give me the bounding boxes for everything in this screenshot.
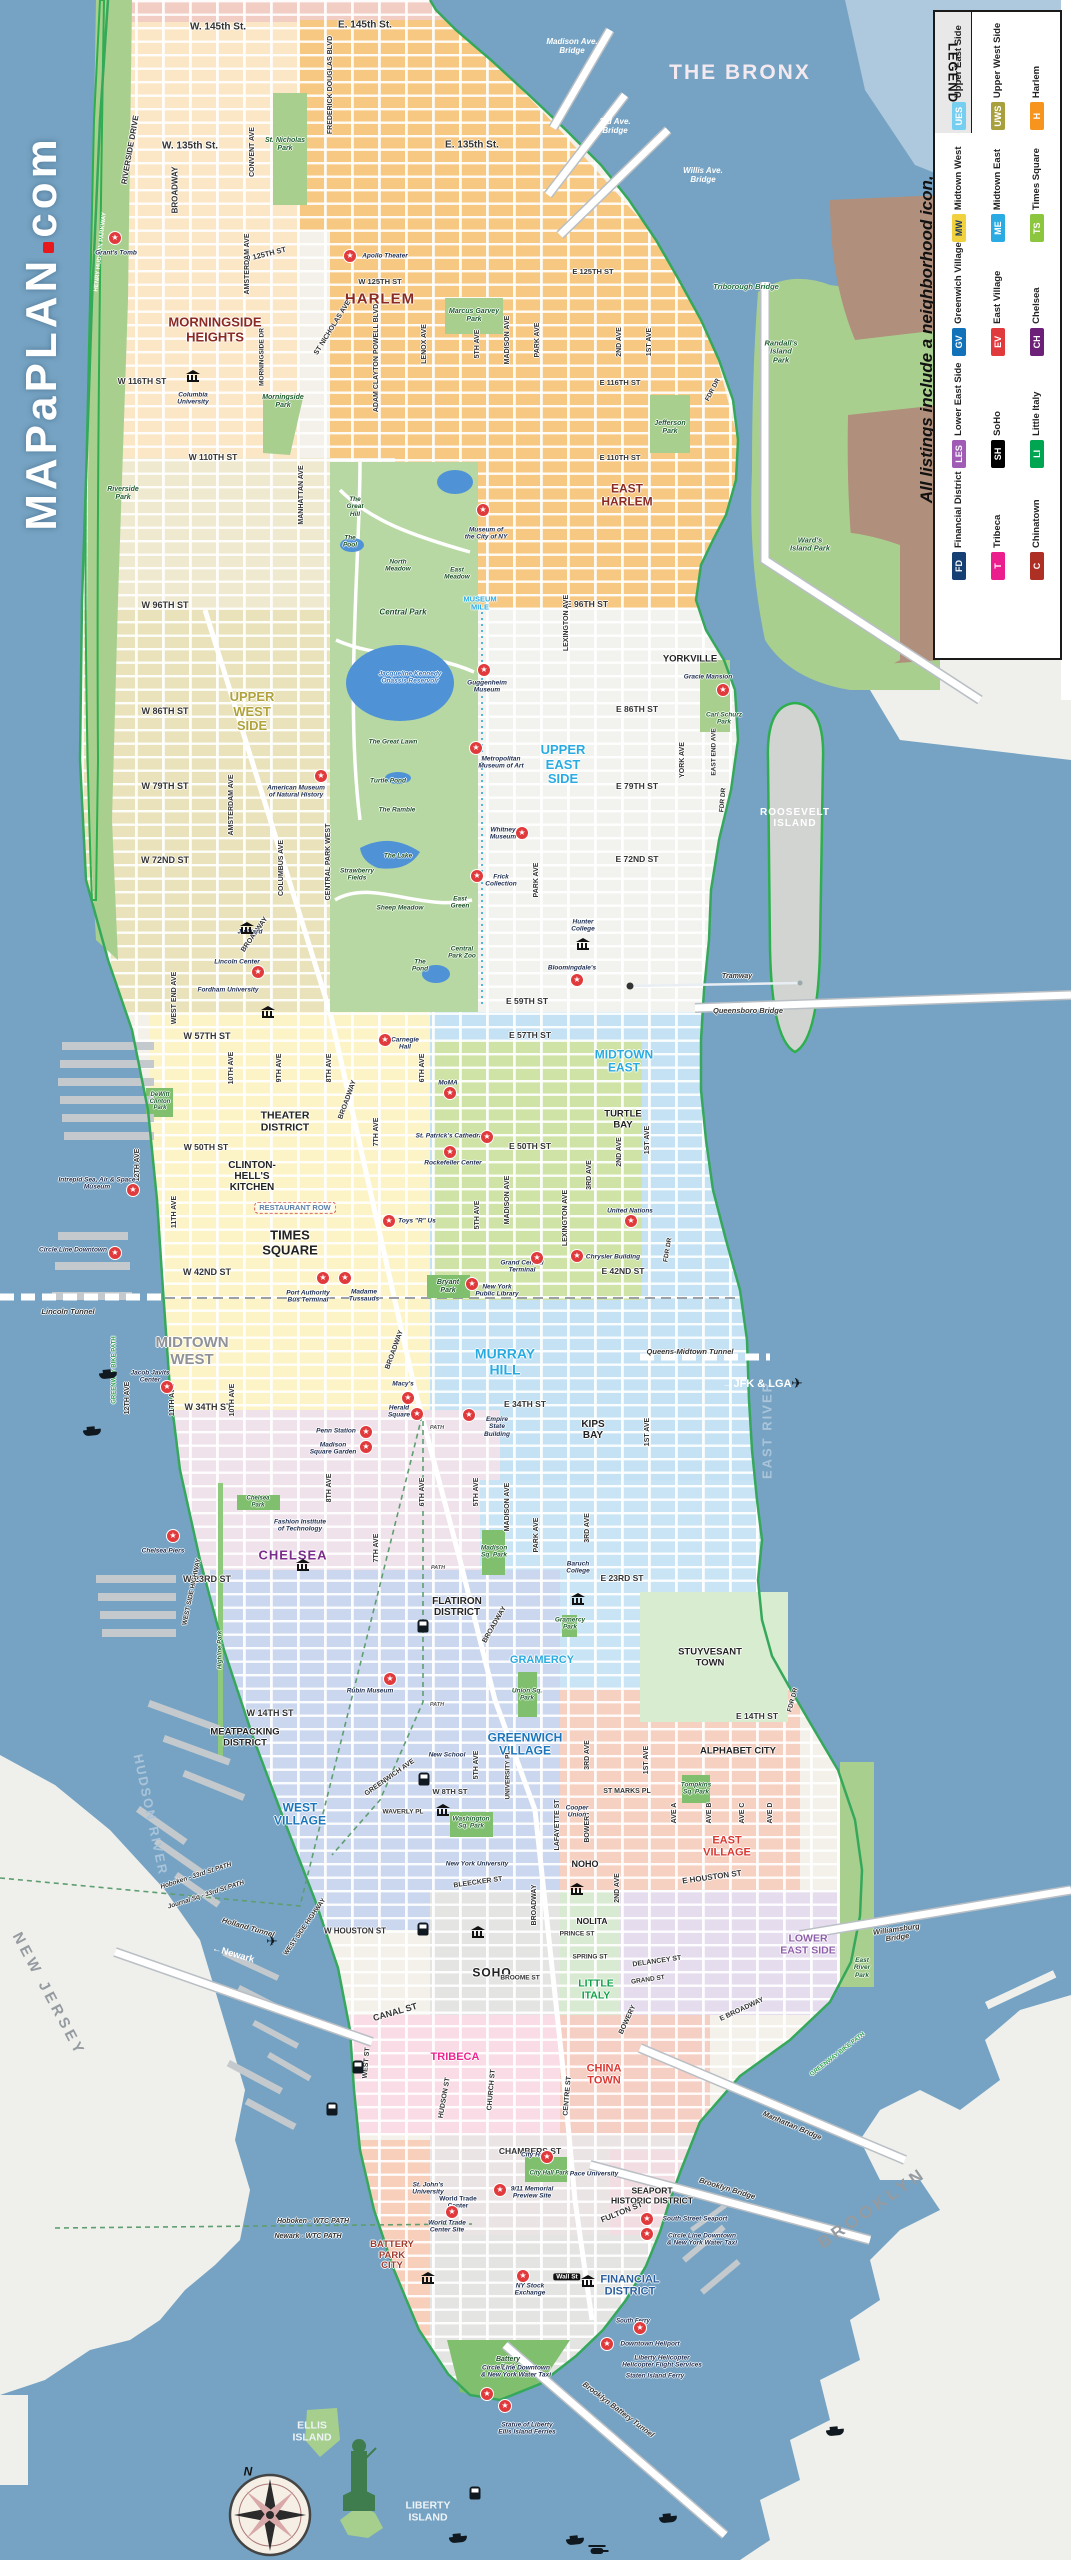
train-icon [418, 1620, 429, 1633]
map-label: E 86TH ST [616, 705, 658, 715]
map-label: FREDERICK DOUGLAS BLVD [327, 36, 335, 134]
legend-item-ch: CHChelsea [1017, 242, 1056, 356]
legend-chip-ch: CH [1030, 328, 1044, 356]
legend-name: Financial District [953, 471, 964, 548]
map-label: 3RD AVE [586, 1160, 594, 1190]
map-label: WEST VILLAGE [274, 1802, 326, 1829]
legend-chip-les: LES [952, 440, 966, 468]
heli-icon [591, 2548, 604, 2554]
ship-icon [449, 2533, 468, 2544]
star-icon: ★ [445, 2205, 459, 2219]
train-icon [419, 1773, 430, 1786]
map-label: Triborough Bridge [713, 283, 779, 291]
map-label: 5TH AVE [473, 1751, 481, 1780]
map-label: LOWER EAST SIDE [780, 1933, 835, 1957]
star-icon: ★ [251, 965, 265, 979]
map-label: Sheep Meadow [377, 904, 424, 911]
legend-item-t: TTribeca [978, 468, 1017, 580]
map-label: 9/11 Memorial Preview Site [511, 2186, 554, 2201]
star-icon: ★ [316, 1271, 330, 1285]
map-label: New School [429, 1751, 466, 1758]
legend-item-ev: EVEast Village [978, 242, 1017, 356]
legend-name: Times Square [1031, 148, 1042, 210]
star-icon: ★ [108, 231, 122, 245]
star-icon: ★ [469, 741, 483, 755]
map-label: W 96TH ST [141, 600, 188, 610]
map-label: W. 135th St. [162, 140, 218, 151]
map-label: 2ND AVE [616, 1137, 624, 1167]
map-label: Highline Park [218, 1631, 225, 1669]
map-label: LEXINGTON AVE [562, 1190, 570, 1246]
map-label: W 125TH ST [358, 278, 401, 286]
map-label: Riverside Park [107, 486, 139, 502]
map-label: E 57TH ST [509, 1031, 551, 1041]
map-label: TIMES SQUARE [262, 1228, 318, 1257]
legend-chip-gv: GV [952, 328, 966, 356]
legend-item-sh: SHSoHo [978, 356, 1017, 468]
star-icon: ★ [462, 1408, 476, 1422]
map-label: MEATPACKING DISTRICT [210, 1727, 279, 1748]
star-icon: ★ [160, 1380, 174, 1394]
map-label: Penn Station [316, 1427, 356, 1434]
map-label: MORNINGSIDE DR [258, 328, 265, 386]
map-label: Toys "R" Us [398, 1217, 436, 1224]
map-label: Wall St [553, 2273, 580, 2280]
legend-item-gv: GVGreenwich Village [939, 242, 978, 356]
map-label: CHINA TOWN [587, 2063, 622, 2088]
map-label: E. 145th St. [338, 19, 392, 30]
map-label: NOHO [572, 1859, 599, 1869]
legend-item-uws: UWSUpper West Side [978, 18, 1017, 130]
map-label: UNIVERSITY PL [504, 1750, 511, 1799]
star-icon: ★ [480, 1130, 494, 1144]
legend-name: Chelsea [1031, 287, 1042, 323]
map-label: W 86TH ST [141, 706, 188, 716]
map-label: MADISON AVE [504, 1483, 512, 1532]
map-label: Bryant Park [437, 1279, 459, 1295]
map-label: Macy's [392, 1380, 413, 1387]
star-icon: ★ [476, 503, 490, 517]
legend-name: Little Italy [1031, 392, 1042, 436]
map-label: 7TH AVE [373, 1534, 381, 1563]
map-label: Cooper Union [566, 1805, 589, 1820]
legend-chip-ues: UES [952, 102, 966, 130]
legend-chip-me: ME [991, 214, 1005, 242]
legend-chip-t: T [991, 552, 1005, 580]
map-label: 10TH AVE [228, 1052, 236, 1085]
map-label: Chrysler Building [586, 1253, 640, 1260]
map-label: E 23RD ST [601, 1574, 644, 1584]
map-label: E 116TH ST [600, 379, 641, 387]
legend-name: Midtown East [992, 149, 1003, 210]
compass-rose [230, 2475, 310, 2555]
inst-icon [261, 1006, 275, 1018]
inst-icon [186, 370, 200, 382]
legend-item-mw: MWMidtown West [939, 130, 978, 242]
map-label: Hoboken - WTC PATH [277, 2218, 349, 2226]
map-label: W 8TH ST [433, 1788, 468, 1796]
map-label: Ward's Island Park [790, 537, 830, 554]
legend-items: FDFinancial DistrictTTribecaCChinatownLE… [935, 12, 1060, 620]
map-label: CHELSEA [258, 1549, 327, 1564]
map-label: LAFAYETTE ST [554, 1799, 562, 1850]
map-label: 9TH AVE [276, 1054, 284, 1083]
star-icon: ★ [624, 1214, 638, 1228]
legend-chip-ev: EV [991, 328, 1005, 356]
map-label: PARK AVE [534, 323, 542, 358]
map-label: E 110TH ST [600, 454, 641, 462]
map-label: TURTLE BAY [604, 1109, 641, 1130]
map-label: BROOME ST [500, 1974, 539, 1981]
map-label: DeWitt Clinton Park [150, 1092, 171, 1112]
map-label: 1ST AVE [646, 328, 654, 356]
map-label: 1ST AVE [644, 1418, 652, 1446]
map-label: YORKVILLE [663, 655, 717, 666]
map-label: Lincoln Center [214, 958, 260, 965]
star-icon: ★ [570, 973, 584, 987]
map-label: PARK AVE [533, 1518, 541, 1553]
star-icon: ★ [108, 1246, 122, 1260]
map-label: Lincoln Tunnel [41, 1308, 94, 1316]
legend-item-me: MEMidtown East [978, 130, 1017, 242]
map-label: LEXINGTON AVE [563, 595, 571, 651]
map-label: Circle Line Downtown & New York Water Ta… [667, 2233, 737, 2248]
map-label: Tompkins Sq. Park [681, 1782, 711, 1797]
map-label: 2ND AVE [616, 327, 624, 357]
map-label: Intrepid Sea, Air & Space Museum [58, 1177, 135, 1192]
map-label: Baruch College [566, 1561, 589, 1576]
ship-icon [659, 2513, 678, 2524]
ship-icon [566, 2535, 585, 2546]
map-label: American Museum of Natural History [267, 785, 325, 800]
map-label: North Meadow [385, 559, 411, 574]
map-label: FINANCIAL DISTRICT [600, 2274, 659, 2299]
map-label: Queensboro Bridge [713, 1007, 783, 1015]
map-label: 5TH AVE [474, 1201, 482, 1230]
star-icon: ★ [633, 2321, 647, 2335]
star-icon: ★ [401, 1391, 415, 1405]
star-icon: ★ [343, 249, 357, 263]
map-label: UPPER EAST SIDE [541, 743, 586, 787]
site-logo-name: MAPaPLAN [17, 257, 66, 531]
legend-name: Upper East Side [953, 25, 964, 98]
legend-name: Greenwich Village [953, 242, 964, 324]
map-label: NOLITA [576, 1917, 607, 1927]
star-icon: ★ [640, 2227, 654, 2241]
map-label: UPPER WEST SIDE [230, 690, 275, 734]
star-icon: ★ [443, 1086, 457, 1100]
star-icon: ★ [359, 1425, 373, 1439]
map-label: COLUMBUS AVE [278, 840, 286, 896]
map-label: EAST HARLEM [601, 483, 652, 510]
map-label: Whitney Museum [490, 827, 516, 842]
star-icon: ★ [493, 2183, 507, 2197]
site-logo-tld: com [17, 135, 66, 237]
map-label: THEATER DISTRICT [261, 1110, 310, 1134]
site-logo: MAPaPLANcom [17, 43, 67, 623]
legend-item-ts: TSTimes Square [1017, 130, 1056, 242]
map-label: 3RD AVE [584, 1513, 592, 1543]
star-icon: ★ [516, 2269, 530, 2283]
legend-name: Midtown West [953, 146, 964, 210]
map-label: Staten Island Ferry [626, 2372, 685, 2379]
train-icon [327, 2103, 338, 2116]
map-label: Queens-Midtown Tunnel [647, 1348, 734, 1356]
ship-icon [99, 1369, 118, 1380]
inst-icon [296, 1559, 310, 1571]
map-label: MORNINGSIDE HEIGHTS [168, 315, 261, 344]
map-label: W 72ND ST [141, 855, 189, 865]
legend-chip-fd: FD [952, 552, 966, 580]
legend-item-les: LESLower East Side [939, 356, 978, 468]
map-label: MADISON AVE [504, 1176, 512, 1225]
map-label: World Trade Center Site [428, 2220, 466, 2235]
map-label: The Great Hill [347, 496, 364, 518]
map-label: Morningside Park [262, 394, 304, 410]
map-label: ELLIS ISLAND [292, 2420, 331, 2444]
map-label: Hunter College [571, 919, 594, 934]
map-canvas: THE BRONXNEW JERSEYBROOKLYNHUDSON RIVERE… [0, 0, 1071, 2560]
map-label: Empire State Building [484, 1416, 510, 1438]
map-label: Fashion Institute of Technology [274, 1519, 326, 1534]
map-label: W HOUSTON ST [324, 1928, 386, 1937]
inst-icon [471, 1926, 485, 1938]
map-label: W 79TH ST [141, 781, 188, 791]
map-label: EAST END AVE [710, 728, 717, 775]
map-label: LENOX AVE [421, 324, 429, 364]
ship-icon [826, 2426, 845, 2437]
map-label: Madison Sq. Park [481, 1545, 507, 1560]
map-label: AVE C [739, 1803, 747, 1824]
map-label: AVE B [706, 1803, 714, 1824]
map-label: Jefferson Park [654, 420, 685, 436]
star-icon: ★ [540, 2150, 554, 2164]
map-label: Rockefeller Center [424, 1159, 481, 1166]
map-label: Newark - WTC PATH [274, 2233, 341, 2241]
map-label: The Great Lawn [369, 738, 418, 745]
map-label: MURRAY HILL [475, 1346, 535, 1377]
map-label: BATTERY PARK CITY [370, 2240, 414, 2272]
map-label: 5TH AVE [473, 1478, 481, 1507]
inst-icon [240, 922, 254, 934]
map-label: KIPS BAY [581, 1419, 604, 1441]
map-label: Central Park Zoo [448, 946, 476, 961]
inst-icon [436, 1804, 450, 1816]
map-label: LITTLE ITALY [578, 1978, 614, 2002]
map-label: PATH [430, 1425, 444, 1431]
map-label: Grant's Tomb [95, 249, 137, 256]
map-label: Guggenheim Museum [467, 680, 507, 695]
star-icon: ★ [600, 2337, 614, 2351]
map-label: E 34TH ST [504, 1400, 546, 1410]
legend-chip-h: H [1030, 102, 1044, 130]
inst-icon [570, 1883, 584, 1895]
star-icon: ★ [480, 2387, 494, 2401]
map-label: E 72ND ST [616, 855, 659, 865]
map-label: East River Park [854, 1957, 870, 1979]
star-icon: ★ [716, 683, 730, 697]
map-label: The Pool [343, 535, 357, 550]
map-label: Jacqueline Kennedy Onassis Reservoir [379, 671, 442, 686]
map-label: AMSTERDAM AVE [228, 774, 236, 835]
map-label: 8TH AVE [326, 1054, 334, 1083]
map-label: CENTRAL PARK WEST [325, 824, 333, 901]
star-icon: ★ [477, 663, 491, 677]
map-label: 2ND AVE [614, 1873, 622, 1903]
map-label: 7TH AVE [373, 1118, 381, 1147]
map-label: East Meadow [444, 567, 470, 582]
legend-item-ues: UESUpper East Side [939, 18, 978, 130]
star-icon: ★ [126, 1183, 140, 1197]
map-label: Madison Square Garden [310, 1442, 357, 1457]
star-icon: ★ [470, 869, 484, 883]
star-icon: ★ [515, 826, 529, 840]
map-label: 3rd Ave. Bridge [599, 118, 630, 136]
star-icon: ★ [498, 2399, 512, 2413]
map-label: Willis Ave. Bridge [683, 167, 723, 185]
map-label: Marcus Garvey Park [449, 308, 499, 324]
map-label: Madison Ave. Bridge [546, 38, 597, 56]
map-label: Metropolitan Museum of Art [478, 756, 523, 771]
map-label: 8TH AVE [326, 1474, 334, 1503]
map-label: Central Park [379, 609, 426, 618]
map-label: TRIBECA [431, 2051, 480, 2063]
map-label: NY Stock Exchange [515, 2283, 546, 2298]
map-label: 6TH AVE [419, 1054, 427, 1083]
map-label: E. 135th St. [445, 139, 499, 150]
map-label: CLINTON- HELL'S KITCHEN [228, 1160, 276, 1194]
star-icon: ★ [382, 1214, 396, 1228]
star-icon: ★ [166, 1529, 180, 1543]
legend-item-li: LILittle Italy [1017, 356, 1056, 468]
star-icon: ★ [570, 1249, 584, 1263]
map-label: E 59TH ST [506, 997, 548, 1007]
map-label: Washington Sq. Park [452, 1816, 489, 1831]
map-label: New York Public Library [475, 1284, 518, 1299]
map-label: PARK AVE [533, 863, 541, 898]
map-label: 10TH AVE [229, 1384, 237, 1417]
map-label: 1ST AVE [644, 1126, 652, 1154]
map-label: SEAPORT HISTORIC DISTRICT [611, 2186, 693, 2205]
map-label: Liberty Helicopter Helicopter Flight Ser… [622, 2355, 702, 2370]
legend-name: Chinatown [1031, 499, 1042, 548]
map-label: FLATIRON DISTRICT [432, 1596, 482, 1618]
legend-board [1061, 0, 1071, 700]
map-label: Statue of Liberty Ellis Island Ferries [498, 2422, 555, 2437]
map-label: 5TH AVE [474, 330, 482, 359]
legend-chip-sh: SH [991, 440, 1005, 468]
train-icon [470, 2487, 481, 2500]
legend-name: Upper West Side [992, 23, 1003, 98]
star-icon: ★ [314, 769, 328, 783]
map-label: Apollo Theater [362, 252, 408, 259]
plane-icon: ✈ [791, 1376, 803, 1392]
legend-name: Harlem [1031, 66, 1042, 98]
legend-name: SoHo [992, 411, 1003, 436]
map-label: SPRING ST [572, 1953, 607, 1960]
map-label: W 34TH ST [184, 1402, 231, 1412]
map-label: Tramway [722, 973, 752, 981]
map-label: 6TH AVE [419, 1478, 427, 1507]
map-label: Carnegie Hall [391, 1037, 419, 1052]
logo-dot-icon [43, 242, 54, 253]
map-label: ALPHABET CITY [700, 1747, 776, 1758]
map-label: E 79TH ST [616, 782, 658, 792]
map-label: W 42ND ST [183, 1267, 231, 1277]
map-label: PATH [430, 1702, 444, 1708]
plane-icon: ✈ [266, 1934, 278, 1950]
map-label: W 116TH ST [118, 377, 167, 387]
map-label: WAVERLY PL [382, 1808, 423, 1815]
star-icon: ★ [465, 1277, 479, 1291]
star-icon: ★ [359, 1440, 373, 1454]
map-label: W. 145th St. [190, 21, 246, 32]
map-label: E 125TH ST [572, 268, 613, 276]
legend-chip-c: C [1030, 552, 1044, 580]
star-icon: ★ [410, 1407, 424, 1421]
legend-item-c: CChinatown [1017, 468, 1056, 580]
map-label: Gramercy Park [555, 1617, 585, 1632]
map-label: WEST END AVE [171, 972, 179, 1025]
map-label: E 50TH ST [509, 1142, 551, 1152]
map-label: PRINCE ST [560, 1930, 595, 1937]
map-label: City Hall Park [530, 2171, 569, 2178]
compass-north-label: N [244, 2465, 253, 2478]
star-icon: ★ [383, 1672, 397, 1686]
inst-icon [581, 2275, 595, 2287]
map-label: →JFK & LGA [722, 1378, 791, 1390]
map-label: Chelsea Park [246, 1495, 269, 1508]
map-label: ADAM CLAYTON POWELL BLVD [373, 304, 381, 412]
map-label: New York University [446, 1860, 509, 1867]
map-label: Downtown Heliport [620, 2340, 679, 2347]
map-label: 12TH AVE [124, 1382, 132, 1415]
map-label: MUSEUM MILE [463, 596, 496, 613]
map-label: E 14TH ST [736, 1712, 778, 1722]
map-label: Port Authority Bus Terminal [286, 1290, 329, 1305]
map-label: AVE D [767, 1803, 775, 1824]
label-the-bronx: THE BRONX [669, 61, 811, 85]
map-label: The Pond [412, 959, 428, 974]
map-label: GRAMERCY [510, 1654, 574, 1666]
map-label: W 50TH ST [184, 1143, 228, 1153]
star-icon: ★ [378, 1033, 392, 1047]
star-icon: ★ [640, 2212, 654, 2226]
map-label: Museum of the City of NY [465, 527, 508, 542]
map-label: Fordham University [197, 986, 258, 993]
map-label: W 57TH ST [183, 1031, 230, 1041]
star-icon: ★ [338, 1271, 352, 1285]
map-label: ST MARKS PL [603, 1788, 650, 1796]
map-label: St. Patrick's Cathedral [416, 1132, 485, 1139]
map-label: Randall's Island Park [764, 339, 797, 364]
map-label: St. John's University [412, 2182, 443, 2197]
map-label: St. Nicholas Park [265, 137, 305, 153]
map-label: South Street Seaport [663, 2215, 728, 2222]
map-label: PATH [431, 1565, 445, 1571]
map-label: YORK AVE [679, 742, 687, 778]
legend-name: East Village [992, 271, 1003, 324]
map-label: ROOSEVELT ISLAND [760, 807, 830, 829]
map-label: BROADWAY [531, 1885, 539, 1926]
map-label: W 110TH ST [189, 453, 238, 463]
train-icon [418, 1923, 429, 1936]
inst-icon [571, 1593, 585, 1605]
map-label: Turtle Pond [370, 777, 406, 784]
legend-chip-uws: UWS [991, 102, 1005, 130]
map-label: STUYVESANT TOWN [678, 1647, 742, 1668]
map-label: MADISON AVE [504, 316, 512, 365]
